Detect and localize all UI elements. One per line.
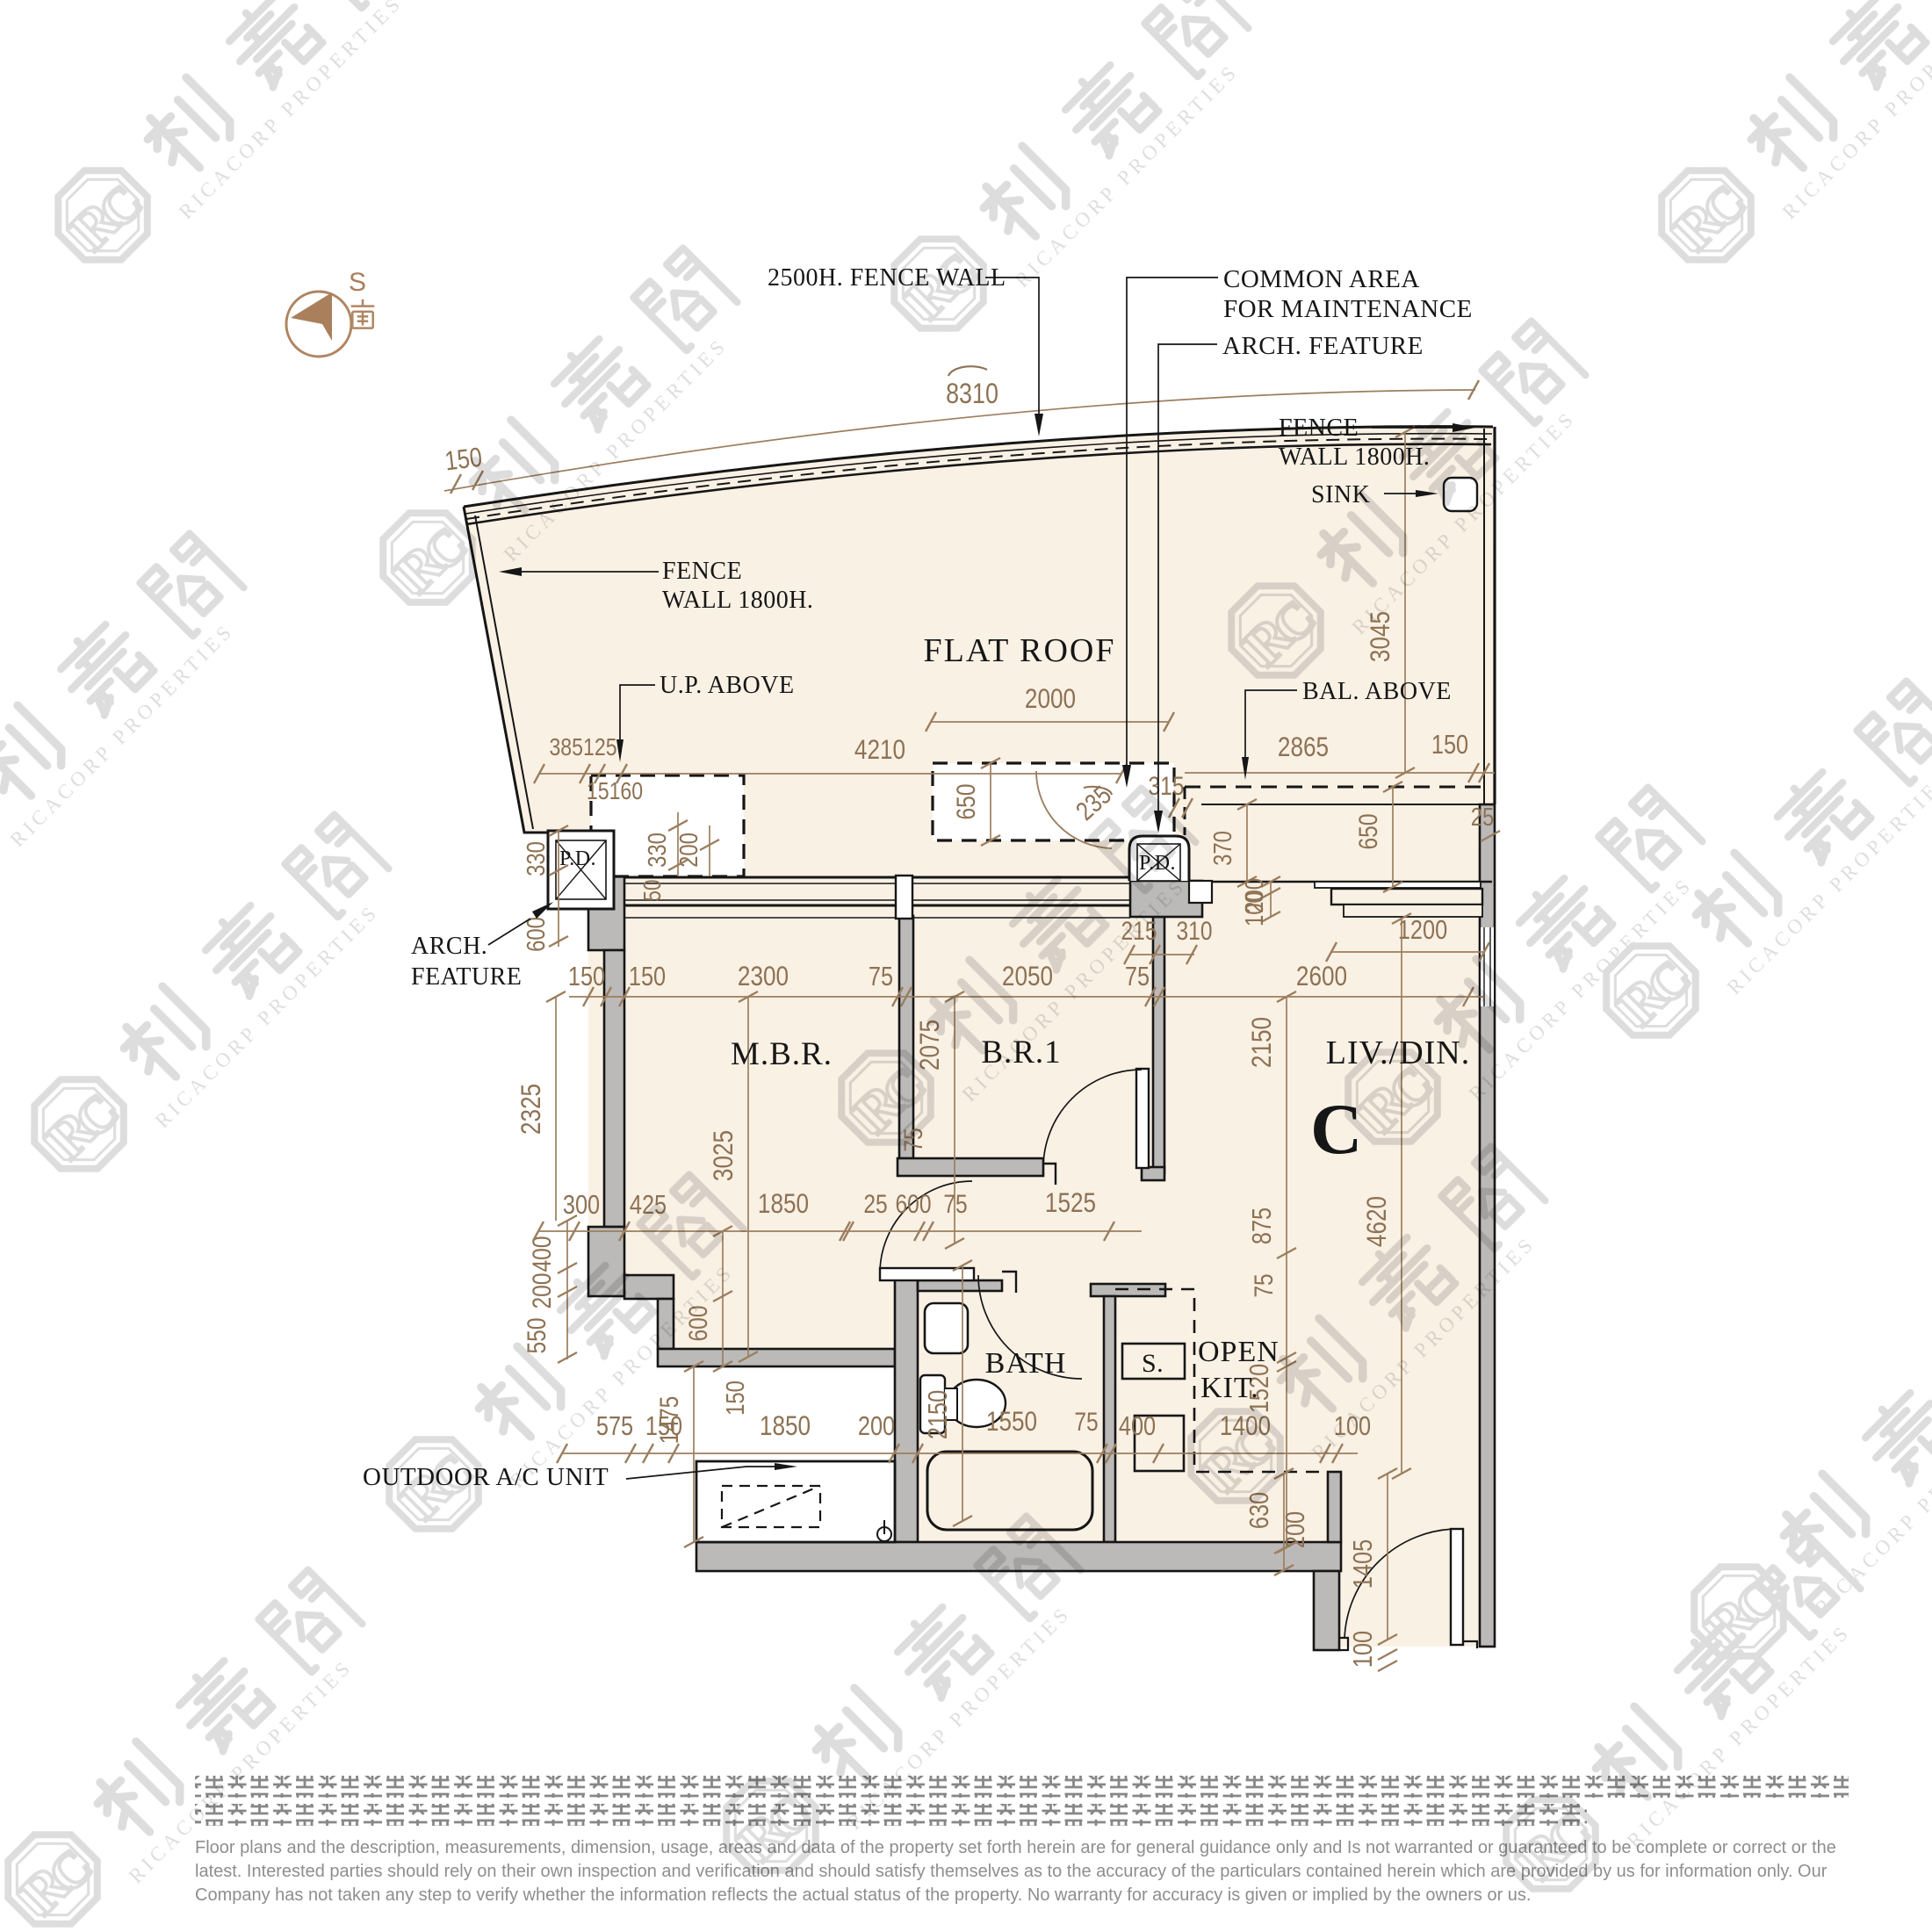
svg-text:1850: 1850 xyxy=(760,1411,811,1442)
svg-text:S.: S. xyxy=(1142,1349,1164,1378)
svg-text:2300: 2300 xyxy=(738,962,789,992)
svg-text:2150: 2150 xyxy=(1247,1017,1278,1068)
svg-text:75: 75 xyxy=(1125,961,1150,991)
svg-text:4620: 4620 xyxy=(1362,1196,1393,1247)
svg-text:1525: 1525 xyxy=(1045,1188,1096,1219)
svg-text:75: 75 xyxy=(1249,1273,1279,1297)
svg-text:1405: 1405 xyxy=(1347,1539,1378,1589)
svg-text:150: 150 xyxy=(1431,729,1468,760)
svg-text:50: 50 xyxy=(639,880,667,902)
svg-text:75: 75 xyxy=(943,1189,967,1219)
svg-text:OPEN: OPEN xyxy=(1198,1336,1280,1368)
svg-text:100: 100 xyxy=(1240,891,1269,926)
svg-text:150: 150 xyxy=(721,1381,750,1416)
svg-text:550: 550 xyxy=(522,1317,551,1353)
svg-text:75: 75 xyxy=(869,961,893,991)
svg-text:S: S xyxy=(349,268,366,297)
svg-text:1200: 1200 xyxy=(1398,914,1447,945)
svg-text:ARCH. FEATURE: ARCH. FEATURE xyxy=(1222,332,1424,360)
svg-text:2000: 2000 xyxy=(1025,684,1076,715)
svg-text:2600: 2600 xyxy=(1296,962,1347,992)
svg-text:385125: 385125 xyxy=(549,734,616,761)
svg-text:ARCH.: ARCH. xyxy=(411,933,487,960)
svg-text:Company has not taken any step: Company has not taken any step to verify… xyxy=(195,1885,1531,1905)
svg-text:FENCE: FENCE xyxy=(1279,415,1359,442)
svg-text:650: 650 xyxy=(1353,813,1383,849)
svg-text:2865: 2865 xyxy=(1278,732,1329,763)
svg-text:150: 150 xyxy=(645,1410,682,1441)
svg-text:200: 200 xyxy=(1280,1511,1310,1548)
svg-text:875: 875 xyxy=(1246,1207,1277,1244)
svg-text:U.P. ABOVE: U.P. ABOVE xyxy=(660,672,795,699)
svg-text:2150: 2150 xyxy=(922,1390,953,1439)
svg-text:1850: 1850 xyxy=(758,1189,809,1220)
svg-text:8310: 8310 xyxy=(946,378,998,410)
svg-text:600: 600 xyxy=(895,1189,931,1219)
svg-text:1550: 1550 xyxy=(986,1407,1037,1438)
svg-text:BAL. ABOVE: BAL. ABOVE xyxy=(1302,678,1452,705)
svg-text:400: 400 xyxy=(1119,1410,1156,1441)
svg-text:75: 75 xyxy=(1074,1407,1098,1437)
svg-text:COMMON AREA: COMMON AREA xyxy=(1223,265,1420,293)
svg-text:575: 575 xyxy=(596,1410,633,1441)
svg-text:330: 330 xyxy=(522,841,551,876)
svg-text:3025: 3025 xyxy=(709,1130,739,1181)
svg-text:100: 100 xyxy=(1347,1631,1378,1668)
svg-text:WALL 1800H.: WALL 1800H. xyxy=(662,587,813,614)
svg-text:2325: 2325 xyxy=(516,1084,547,1135)
svg-text:KIT.: KIT. xyxy=(1200,1372,1259,1404)
svg-text:4210: 4210 xyxy=(854,735,905,766)
svg-text:BATH: BATH xyxy=(985,1347,1067,1380)
svg-text:FOR MAINTENANCE: FOR MAINTENANCE xyxy=(1223,295,1473,323)
svg-text:FEATURE: FEATURE xyxy=(411,963,522,991)
svg-text:650: 650 xyxy=(951,783,981,819)
svg-text:FLAT ROOF: FLAT ROOF xyxy=(924,632,1116,669)
svg-text:25: 25 xyxy=(863,1189,887,1219)
svg-text:FENCE: FENCE xyxy=(662,558,742,585)
svg-text:25: 25 xyxy=(1471,803,1495,832)
svg-text:400: 400 xyxy=(527,1236,557,1272)
svg-text:2050: 2050 xyxy=(1002,962,1053,992)
svg-text:150: 150 xyxy=(629,961,666,991)
svg-text:200: 200 xyxy=(527,1272,557,1308)
svg-text:15160: 15160 xyxy=(587,778,643,805)
svg-text:150: 150 xyxy=(568,961,605,991)
svg-text:M.B.R.: M.B.R. xyxy=(731,1036,833,1072)
svg-text:310: 310 xyxy=(1176,916,1212,946)
svg-text:370: 370 xyxy=(1208,831,1237,866)
svg-text:200: 200 xyxy=(858,1410,895,1441)
svg-text:330: 330 xyxy=(643,833,672,868)
svg-text:300: 300 xyxy=(563,1189,600,1220)
